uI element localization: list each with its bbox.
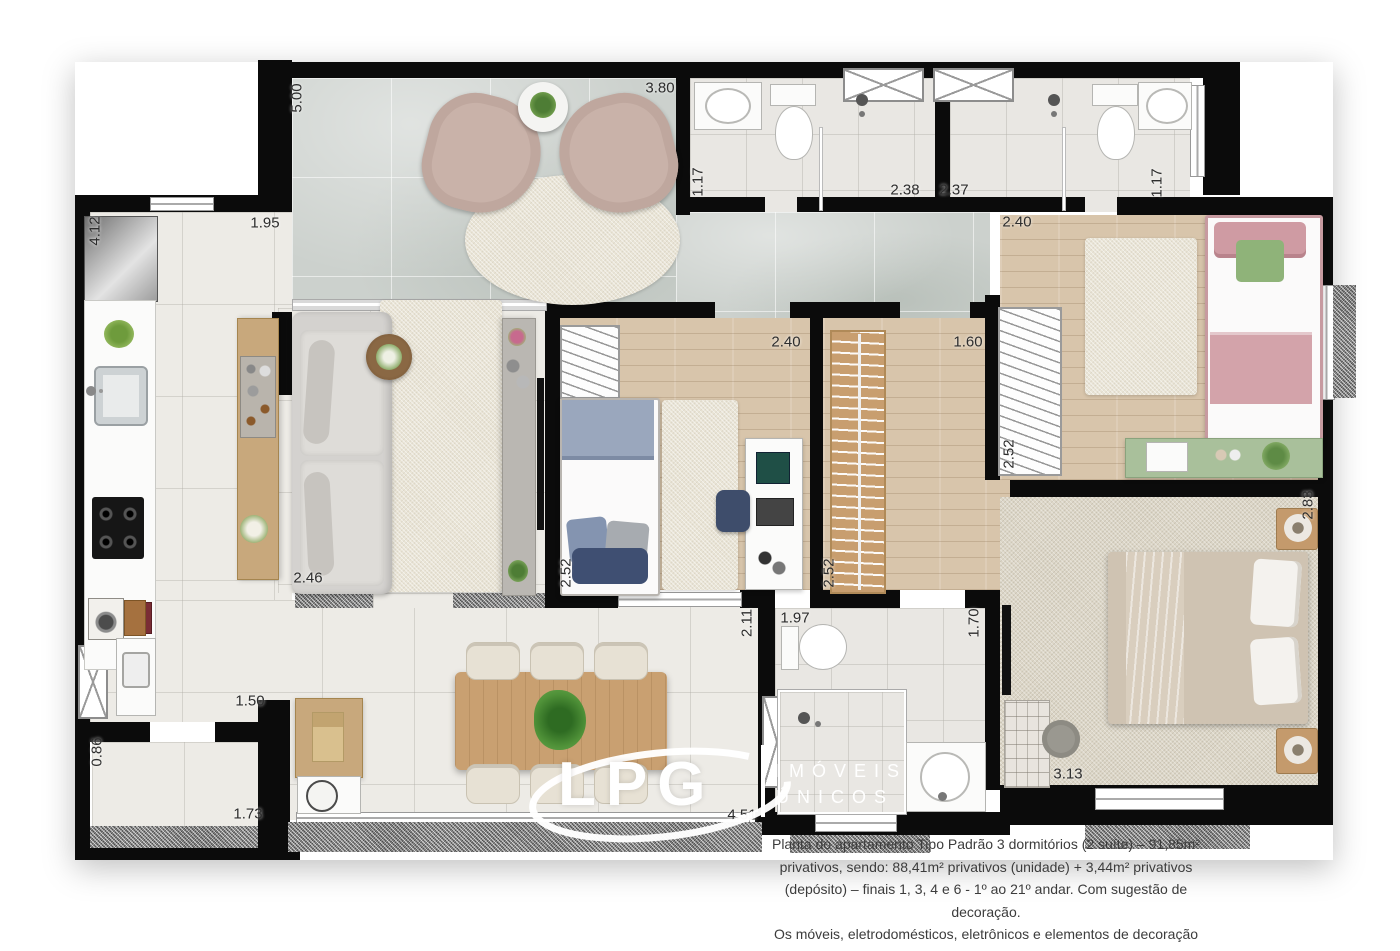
desk-art: [756, 452, 790, 484]
toilet-bowl: [1097, 106, 1135, 160]
bed-blanket: [562, 400, 654, 460]
toilet-bowl: [775, 106, 813, 160]
wall: [790, 302, 900, 318]
sofa-bolster: [303, 471, 334, 576]
window: [150, 197, 214, 211]
flowers: [240, 515, 268, 543]
window: [1190, 85, 1205, 177]
kitchen-sink: [94, 366, 148, 426]
clothes-rack: [830, 330, 886, 594]
floor-plan-canvas: 5.003.801.172.382.371.172.402.524.121.95…: [0, 0, 1400, 951]
logo-tagline-line2: ÚNICOS: [776, 787, 894, 808]
dining-chair: [466, 642, 520, 680]
shaft-panel: [843, 68, 924, 102]
wall: [797, 197, 1085, 212]
toilet-tank: [770, 84, 816, 106]
wardrobe: [998, 307, 1062, 476]
parapet-wall: [295, 593, 373, 608]
wall: [676, 197, 765, 212]
window: [1095, 788, 1224, 810]
wall: [1203, 62, 1240, 195]
decor-vases: [506, 356, 530, 396]
bed-pillow: [1250, 558, 1302, 627]
lamp-icon: [1284, 514, 1312, 542]
lamp-icon: [1284, 736, 1312, 764]
facade-wall: [90, 826, 258, 848]
wall: [965, 590, 985, 608]
desk-items: [1215, 446, 1245, 464]
floor-storage: [92, 742, 258, 826]
wall: [740, 590, 775, 608]
plant: [530, 92, 556, 118]
wall: [810, 302, 823, 608]
pouf: [1042, 720, 1080, 758]
laundry-shelf: [124, 600, 146, 636]
wall: [676, 62, 690, 215]
wall: [258, 700, 290, 855]
laundry-sink: [122, 652, 150, 688]
laptop: [1146, 442, 1188, 472]
caption-paragraph-2: Os móveis, eletrodomésticos, eletrônicos…: [768, 923, 1204, 951]
tv: [537, 378, 544, 530]
shower-head-icon: [798, 712, 810, 724]
plant: [508, 560, 528, 582]
washer: [88, 598, 124, 640]
bed-cushion: [1236, 240, 1284, 282]
logo-tagline-line1: IMÓVEIS: [776, 761, 907, 782]
dining-chair: [530, 642, 584, 680]
window-ledge: [1333, 285, 1356, 398]
toilet-tank: [781, 626, 799, 670]
plant: [104, 320, 134, 348]
wall: [215, 722, 258, 742]
toilet-tank: [1092, 84, 1138, 106]
shower-glass: [1063, 128, 1065, 210]
toilet-bowl: [799, 624, 847, 670]
bed-pillow: [1250, 636, 1302, 705]
faucet-icon: [86, 386, 96, 396]
console-items: [312, 712, 344, 762]
shower-head-icon: [856, 94, 868, 106]
decor-flowers: [508, 328, 526, 346]
shower-glass: [820, 128, 822, 210]
fridge: [84, 216, 158, 302]
faucet-icon: [938, 792, 947, 801]
tv: [1002, 605, 1011, 695]
round-mirror: [306, 780, 338, 812]
brand-logo: LPG IMÓVEIS ÚNICOS: [520, 735, 900, 845]
wall: [545, 302, 560, 608]
wall: [1117, 197, 1333, 215]
laptop: [756, 498, 794, 526]
bedroom-rug: [1085, 238, 1197, 395]
caption-block: Planta do apartamento Tipo Padrão 3 dorm…: [768, 833, 1204, 951]
floor-passage-living-dining: [373, 593, 453, 608]
shower-head-icon: [1048, 94, 1060, 106]
cooktop: [92, 497, 144, 559]
coffee-tray: [240, 356, 276, 438]
desk-chair: [716, 490, 750, 532]
wall: [258, 60, 292, 212]
caption-paragraph-1: Planta do apartamento Tipo Padrão 3 dorm…: [768, 833, 1204, 923]
wall: [1010, 480, 1333, 497]
wall: [985, 590, 1000, 790]
logo-divider: [761, 745, 765, 817]
bed-pillow: [572, 548, 648, 584]
plant: [1262, 442, 1290, 470]
bed-blanket: [1210, 332, 1312, 404]
sink: [705, 88, 751, 124]
desk-items: [756, 548, 788, 578]
shaft-panel: [933, 68, 1014, 102]
sink: [1146, 88, 1188, 124]
flowers: [376, 344, 402, 370]
wall: [262, 62, 690, 78]
wardrobe: [560, 325, 620, 399]
bed-runner: [1126, 552, 1184, 724]
dining-chair: [466, 764, 520, 804]
logo-brand-text: LPG: [558, 749, 715, 820]
dining-chair: [594, 642, 648, 680]
wall: [90, 722, 150, 742]
